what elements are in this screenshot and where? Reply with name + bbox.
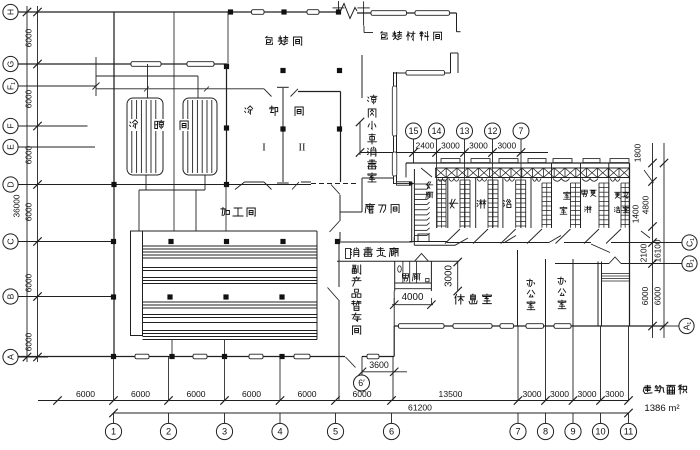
svg-text:3000: 3000	[550, 389, 569, 399]
svg-text:3000: 3000	[577, 389, 596, 399]
svg-text:6000: 6000	[24, 202, 34, 221]
svg-text:6000: 6000	[24, 145, 34, 164]
svg-text:15: 15	[409, 126, 419, 136]
svg-text:2: 2	[166, 427, 171, 437]
svg-text:3000: 3000	[469, 141, 488, 151]
svg-text:36000: 36000	[12, 194, 22, 217]
svg-text:6000: 6000	[24, 28, 34, 47]
svg-text:4000: 4000	[402, 292, 424, 303]
svg-text:I: I	[262, 143, 266, 154]
svg-text:13500: 13500	[439, 389, 463, 399]
svg-text:5: 5	[333, 427, 338, 437]
svg-text:14: 14	[432, 126, 442, 136]
svg-text:4800: 4800	[641, 195, 651, 214]
svg-text:3000: 3000	[522, 389, 541, 399]
svg-text:8: 8	[543, 427, 548, 437]
svg-text:6′: 6′	[358, 378, 365, 388]
svg-text:F: F	[5, 123, 15, 128]
svg-text:3000: 3000	[444, 265, 455, 287]
svg-text:B: B	[5, 293, 15, 299]
svg-text:6000: 6000	[76, 389, 95, 399]
svg-text:A: A	[5, 354, 15, 360]
svg-text:11: 11	[624, 427, 634, 437]
svg-text:6000: 6000	[297, 389, 316, 399]
svg-text:61200: 61200	[408, 403, 432, 413]
svg-text:3000: 3000	[605, 389, 624, 399]
svg-text:6000: 6000	[24, 89, 34, 108]
svg-text:13: 13	[460, 126, 470, 136]
svg-text:6000: 6000	[131, 389, 150, 399]
svg-text:1386 m²: 1386 m²	[644, 403, 680, 414]
svg-text:E: E	[5, 144, 15, 150]
svg-text:6000: 6000	[186, 389, 205, 399]
svg-text:6000: 6000	[640, 286, 650, 305]
svg-text:10: 10	[595, 427, 605, 437]
svg-text:4: 4	[277, 427, 282, 437]
svg-text:3600: 3600	[369, 360, 389, 370]
svg-text:C: C	[5, 238, 15, 244]
svg-text:6: 6	[389, 427, 394, 437]
svg-text:2100: 2100	[639, 243, 649, 262]
svg-text:1800: 1800	[633, 143, 643, 162]
svg-text:7: 7	[519, 126, 524, 136]
svg-text:G: G	[5, 60, 15, 67]
svg-text:1: 1	[111, 427, 116, 437]
svg-text:6000: 6000	[24, 332, 34, 351]
svg-text:1400: 1400	[631, 204, 641, 223]
svg-text:3000: 3000	[441, 141, 460, 151]
svg-text:12: 12	[488, 126, 498, 136]
svg-text:H: H	[5, 9, 15, 15]
svg-text:9: 9	[570, 427, 575, 437]
svg-text:2400: 2400	[416, 141, 435, 151]
svg-text:6000: 6000	[24, 273, 34, 292]
svg-text:II: II	[299, 143, 306, 154]
svg-text:3000: 3000	[497, 141, 516, 151]
svg-text:6000: 6000	[653, 286, 663, 305]
svg-text:3: 3	[222, 427, 227, 437]
svg-text:7: 7	[515, 427, 520, 437]
svg-text:6000: 6000	[242, 389, 261, 399]
svg-text:D: D	[5, 181, 15, 187]
